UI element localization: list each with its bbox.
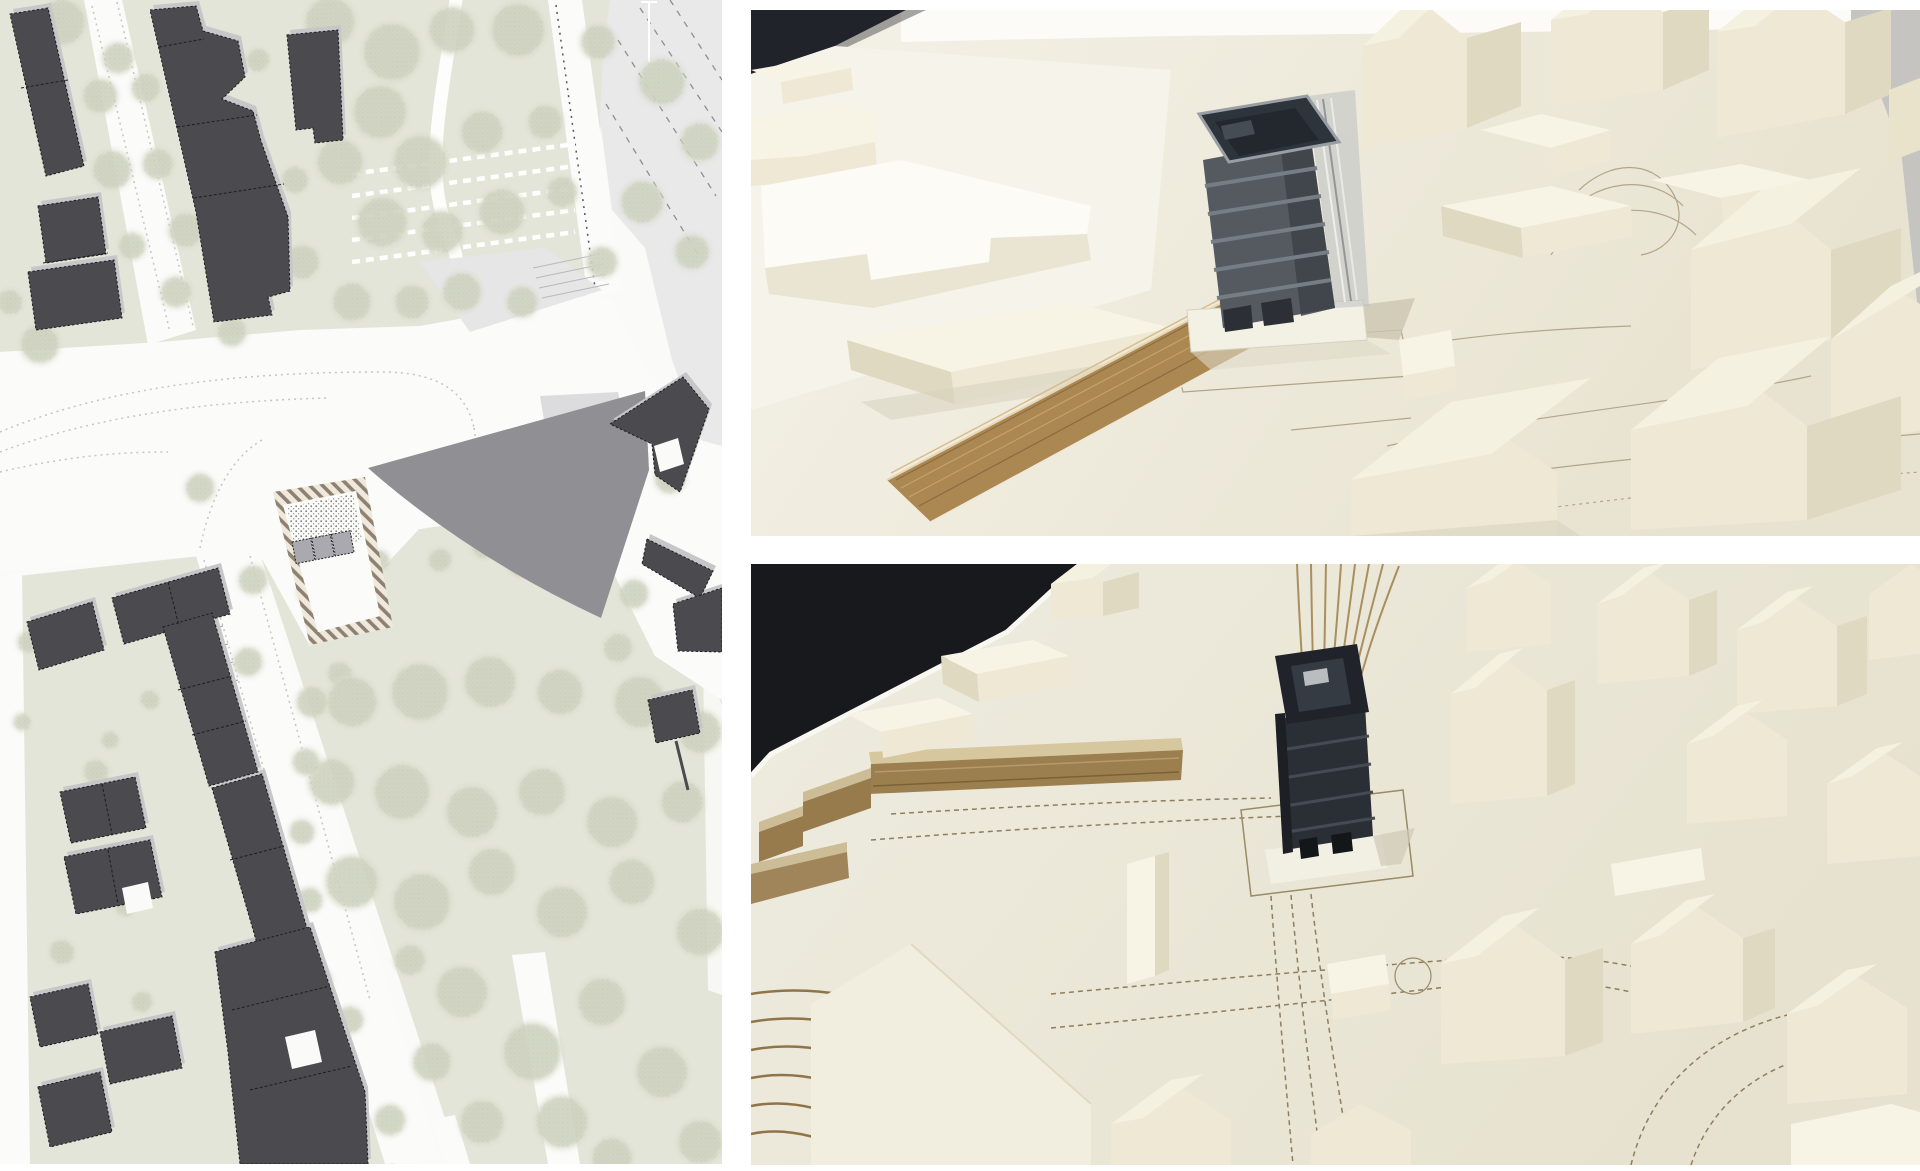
site-plan-drawing bbox=[0, 0, 722, 1164]
model-photo-perspective bbox=[751, 10, 1920, 536]
collage-board bbox=[0, 0, 1920, 1171]
model-photo-aerial bbox=[751, 564, 1920, 1165]
